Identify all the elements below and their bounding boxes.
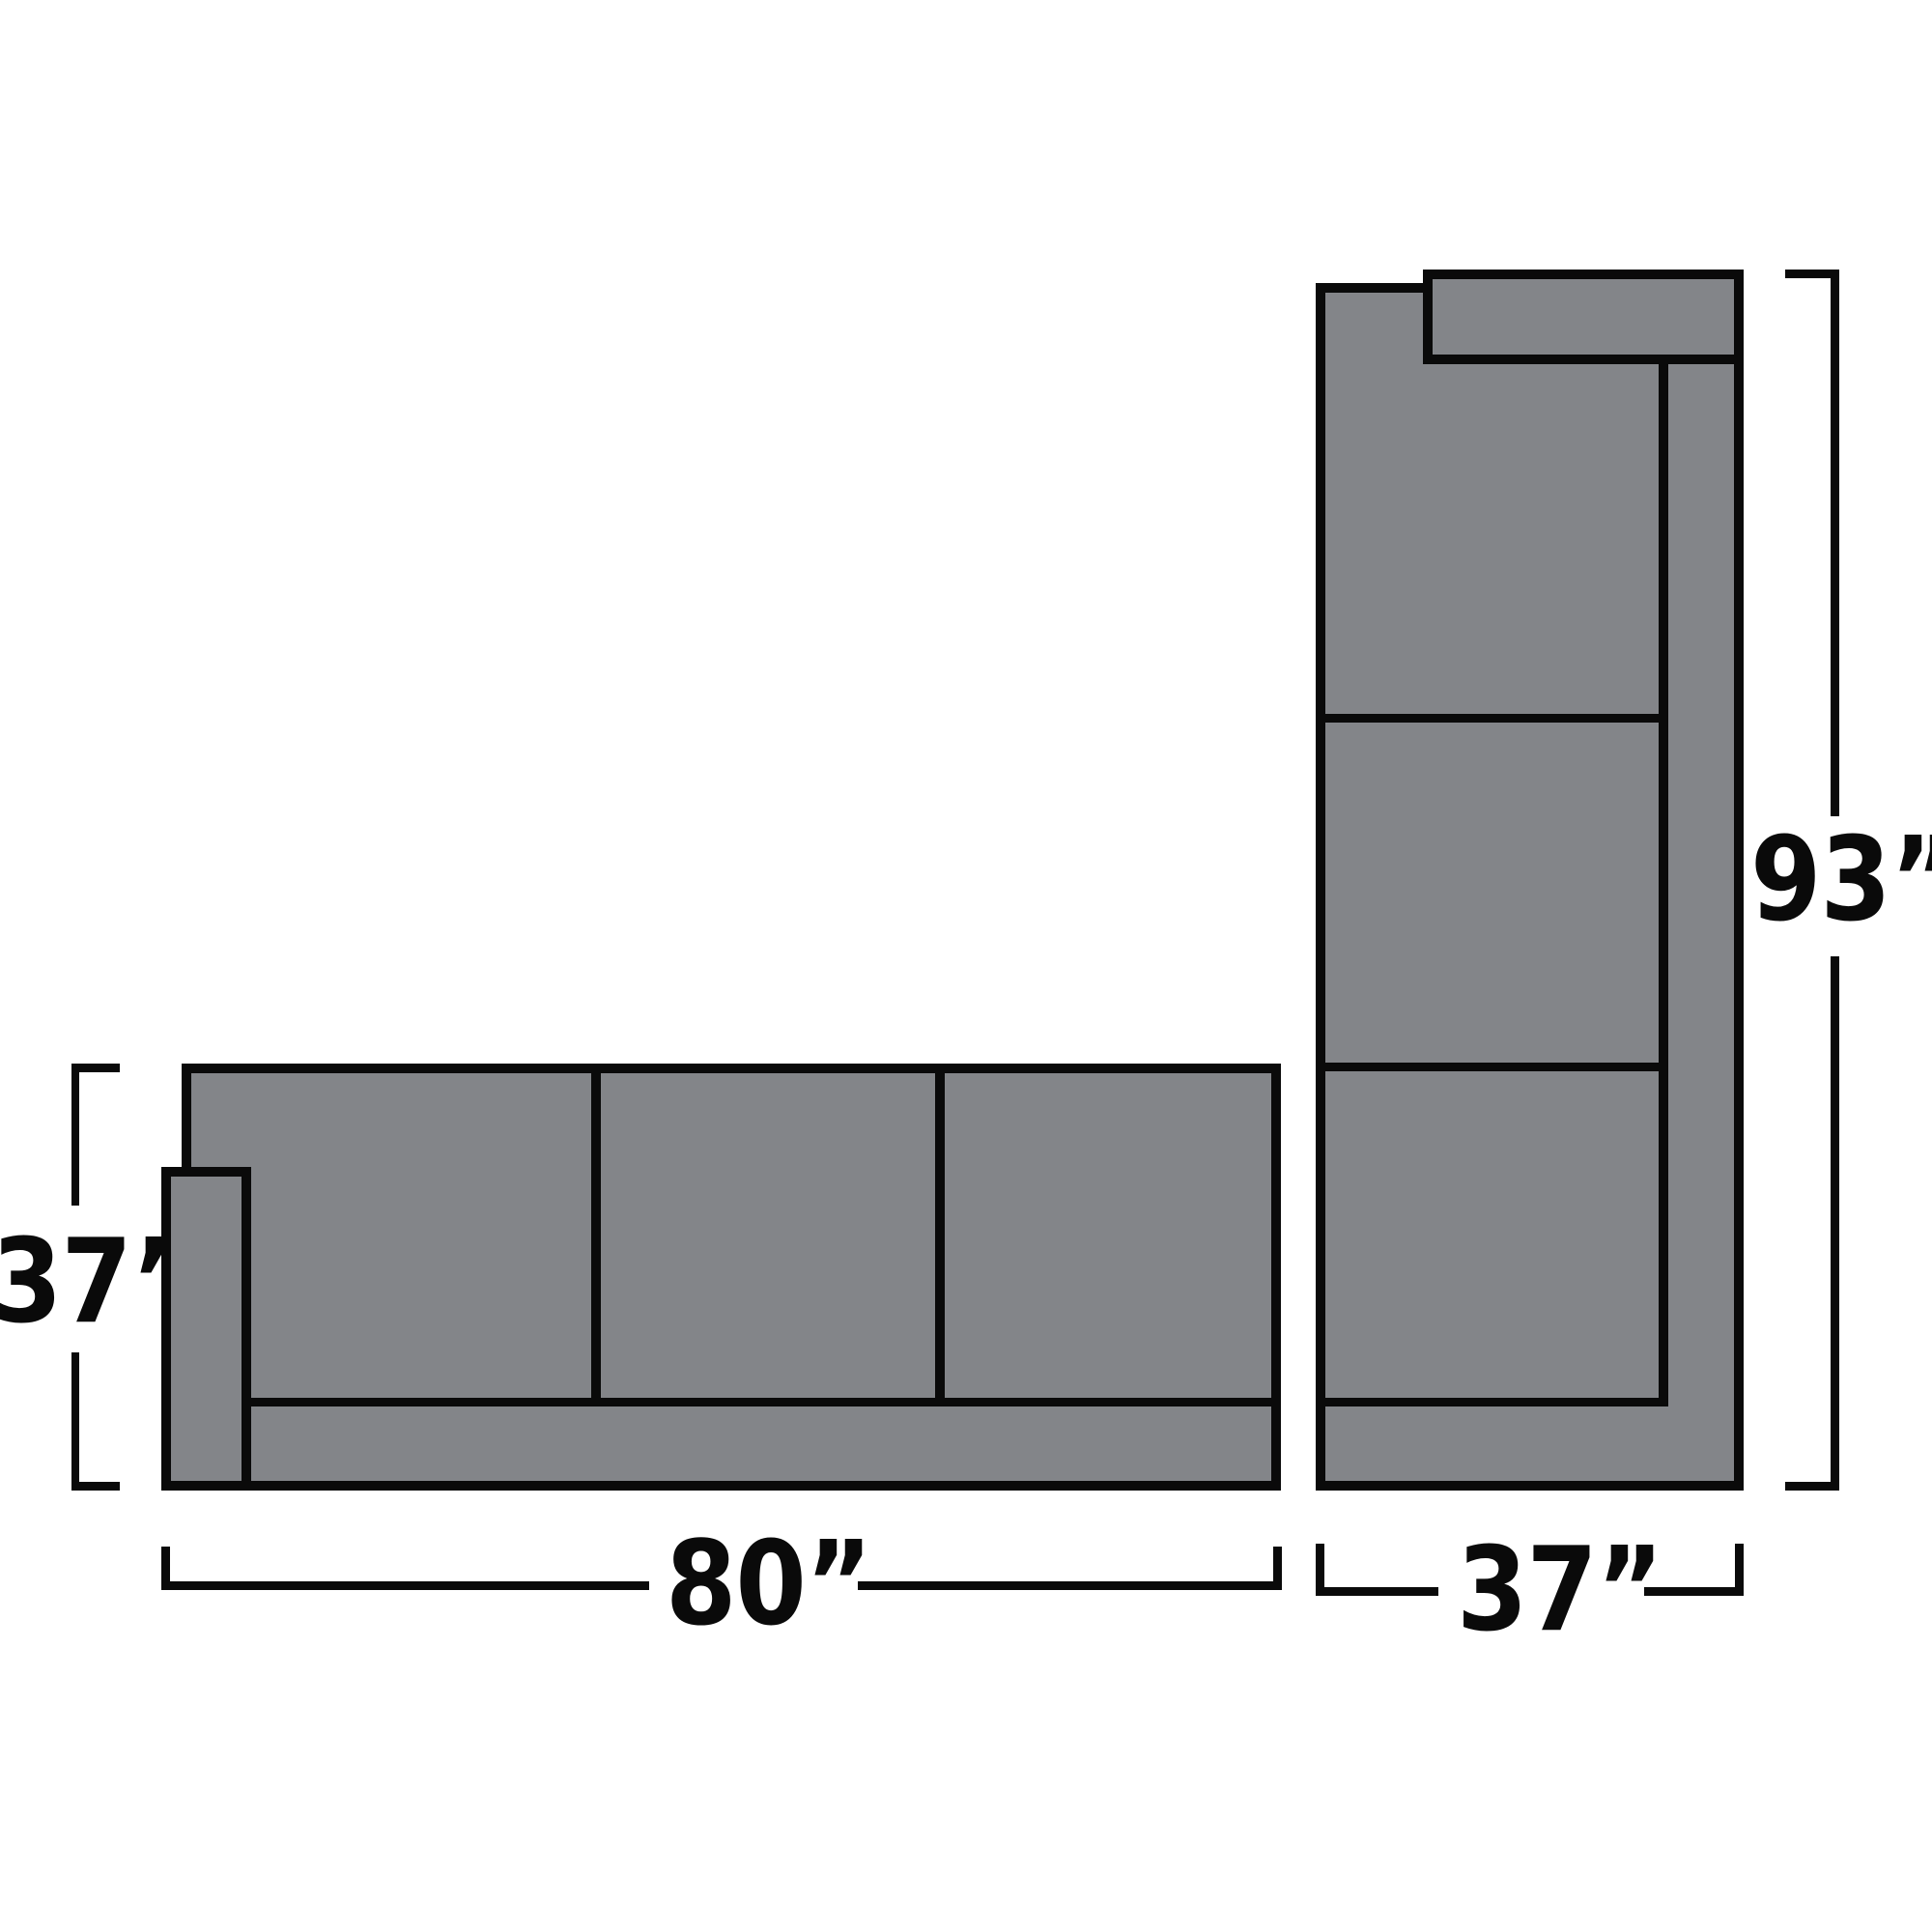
length-right-label: 93” [1750,823,1932,939]
width-bottom-right-label: 37” [1457,1533,1662,1649]
sofa-vertical-cushion-divider-1 [1321,714,1668,723]
sofa-vertical-back-line [1659,359,1668,1405]
sofa-horizontal-seat-front-line [243,1398,1275,1406]
sofa-horizontal-cushion-divider-1 [591,1068,601,1406]
sofa-vertical-armrest [1423,270,1744,364]
width-bottom-line-left [161,1581,649,1590]
sofa-vertical-seat-front-line [1321,1398,1668,1406]
width-bottom-right-line-left [1316,1587,1438,1596]
sofa-horizontal-cushion-divider-2 [935,1068,945,1406]
sectional-dimension-diagram: 37” 80” 37” 93” [0,0,1932,1932]
depth-left-tick-bottom [71,1482,120,1491]
depth-left-line-upper [71,1064,79,1206]
sofa-vertical-cushion-divider-2 [1321,1063,1668,1071]
sofa-horizontal-body [182,1064,1281,1491]
sofa-vertical-body [1316,283,1744,1491]
depth-left-line-lower [71,1352,79,1491]
width-bottom-label: 80” [666,1527,871,1643]
sofa-horizontal-armrest [161,1167,251,1491]
length-right-line-upper [1831,270,1839,816]
width-bottom-tick-right [1273,1547,1282,1590]
length-right-tick-bottom [1785,1482,1839,1491]
width-bottom-right-tick-right [1735,1544,1744,1596]
length-right-line-lower [1831,956,1839,1491]
width-bottom-line-right [858,1581,1282,1590]
